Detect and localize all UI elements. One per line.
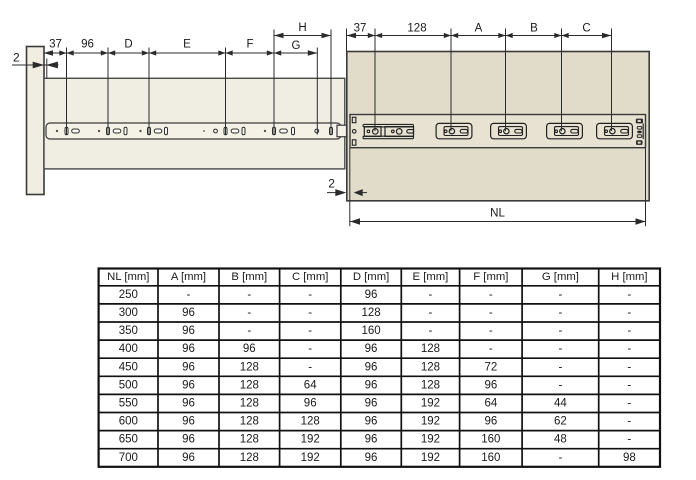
svg-text:192: 192 — [421, 397, 440, 409]
svg-text:128: 128 — [240, 361, 259, 373]
svg-text:160: 160 — [361, 325, 380, 337]
svg-text:72: 72 — [484, 361, 497, 373]
svg-text:128: 128 — [240, 379, 259, 391]
svg-text:128: 128 — [240, 397, 259, 409]
svg-text:96: 96 — [484, 416, 497, 428]
svg-text:-: - — [489, 307, 493, 319]
svg-text:-: - — [308, 289, 312, 301]
svg-text:96: 96 — [243, 343, 256, 355]
svg-text:96: 96 — [365, 343, 378, 355]
svg-text:160: 160 — [481, 434, 500, 446]
svg-text:160: 160 — [481, 452, 500, 464]
svg-text:192: 192 — [421, 416, 440, 428]
svg-text:B: B — [530, 22, 538, 34]
svg-text:-: - — [429, 307, 433, 319]
svg-text:600: 600 — [119, 416, 138, 428]
svg-text:96: 96 — [365, 379, 378, 391]
svg-text:A [mm]: A [mm] — [171, 271, 206, 283]
svg-text:2: 2 — [13, 51, 20, 65]
svg-text:96: 96 — [365, 361, 378, 373]
svg-text:37: 37 — [354, 22, 367, 34]
svg-text:NL [mm]: NL [mm] — [107, 271, 149, 283]
svg-text:96: 96 — [182, 343, 195, 355]
svg-text:C: C — [582, 22, 590, 34]
svg-text:250: 250 — [119, 289, 138, 301]
svg-text:-: - — [308, 361, 312, 373]
svg-text:192: 192 — [301, 452, 320, 464]
svg-text:G: G — [292, 40, 301, 52]
svg-text:-: - — [187, 289, 191, 301]
svg-text:96: 96 — [182, 452, 195, 464]
svg-text:-: - — [627, 325, 631, 337]
svg-text:A: A — [475, 22, 483, 34]
svg-text:37: 37 — [49, 38, 62, 50]
svg-text:128: 128 — [421, 361, 440, 373]
svg-text:B [mm]: B [mm] — [231, 271, 267, 283]
svg-text:96: 96 — [182, 379, 195, 391]
svg-text:-: - — [247, 325, 251, 337]
svg-text:-: - — [308, 343, 312, 355]
svg-text:192: 192 — [421, 434, 440, 446]
svg-text:-: - — [558, 452, 562, 464]
svg-text:44: 44 — [554, 397, 567, 409]
svg-text:D [mm]: D [mm] — [353, 271, 389, 283]
svg-text:96: 96 — [484, 379, 497, 391]
svg-text:96: 96 — [182, 361, 195, 373]
svg-text:128: 128 — [240, 416, 259, 428]
svg-text:-: - — [429, 289, 433, 301]
svg-text:128: 128 — [361, 307, 380, 319]
svg-text:64: 64 — [304, 379, 317, 391]
svg-text:F: F — [246, 38, 253, 50]
svg-text:500: 500 — [119, 379, 138, 391]
svg-text:128: 128 — [301, 416, 320, 428]
svg-text:-: - — [627, 416, 631, 428]
svg-text:-: - — [247, 289, 251, 301]
svg-text:96: 96 — [304, 397, 317, 409]
svg-text:-: - — [429, 325, 433, 337]
svg-text:96: 96 — [182, 325, 195, 337]
svg-text:96: 96 — [365, 434, 378, 446]
svg-text:-: - — [558, 343, 562, 355]
svg-text:E: E — [183, 38, 191, 50]
svg-text:-: - — [627, 361, 631, 373]
svg-text:128: 128 — [421, 343, 440, 355]
svg-text:D: D — [124, 38, 132, 50]
svg-text:-: - — [558, 325, 562, 337]
svg-text:192: 192 — [301, 434, 320, 446]
svg-text:128: 128 — [240, 434, 259, 446]
svg-text:-: - — [489, 343, 493, 355]
svg-text:C [mm]: C [mm] — [292, 271, 328, 283]
svg-text:96: 96 — [81, 38, 94, 50]
svg-text:128: 128 — [421, 379, 440, 391]
svg-text:300: 300 — [119, 307, 138, 319]
svg-text:400: 400 — [119, 343, 138, 355]
svg-text:700: 700 — [119, 452, 138, 464]
svg-text:-: - — [247, 307, 251, 319]
svg-text:-: - — [308, 325, 312, 337]
svg-text:96: 96 — [182, 307, 195, 319]
svg-text:-: - — [558, 289, 562, 301]
svg-text:96: 96 — [365, 289, 378, 301]
svg-text:96: 96 — [182, 434, 195, 446]
svg-text:350: 350 — [119, 325, 138, 337]
svg-text:H [mm]: H [mm] — [611, 271, 647, 283]
svg-text:-: - — [558, 379, 562, 391]
svg-text:650: 650 — [119, 434, 138, 446]
svg-text:E [mm]: E [mm] — [413, 271, 449, 283]
svg-text:48: 48 — [554, 434, 567, 446]
svg-text:64: 64 — [484, 397, 497, 409]
svg-text:96: 96 — [182, 416, 195, 428]
svg-text:-: - — [627, 289, 631, 301]
svg-text:-: - — [627, 397, 631, 409]
svg-text:96: 96 — [365, 397, 378, 409]
svg-text:96: 96 — [365, 452, 378, 464]
svg-text:-: - — [627, 434, 631, 446]
svg-text:-: - — [558, 307, 562, 319]
svg-text:-: - — [627, 379, 631, 391]
svg-text:-: - — [489, 289, 493, 301]
svg-text:450: 450 — [119, 361, 138, 373]
svg-text:-: - — [489, 325, 493, 337]
svg-text:G [mm]: G [mm] — [542, 271, 579, 283]
svg-text:96: 96 — [365, 416, 378, 428]
svg-text:550: 550 — [119, 397, 138, 409]
svg-text:98: 98 — [623, 452, 636, 464]
svg-text:128: 128 — [407, 22, 426, 34]
svg-text:128: 128 — [240, 452, 259, 464]
svg-text:NL: NL — [490, 207, 505, 219]
svg-text:-: - — [308, 307, 312, 319]
svg-text:-: - — [558, 361, 562, 373]
svg-text:62: 62 — [554, 416, 567, 428]
svg-text:-: - — [627, 343, 631, 355]
svg-text:F [mm]: F [mm] — [473, 271, 508, 283]
svg-text:96: 96 — [182, 397, 195, 409]
svg-text:-: - — [627, 307, 631, 319]
svg-text:H: H — [298, 22, 306, 34]
svg-text:192: 192 — [421, 452, 440, 464]
svg-text:2: 2 — [328, 176, 335, 190]
